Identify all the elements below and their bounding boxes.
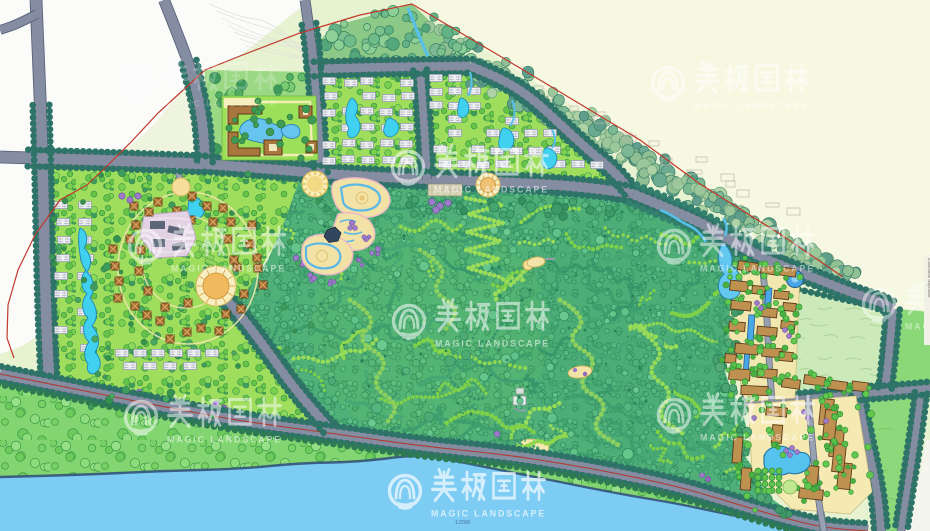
svg-text:1:2000: 1:2000 <box>455 520 471 526</box>
